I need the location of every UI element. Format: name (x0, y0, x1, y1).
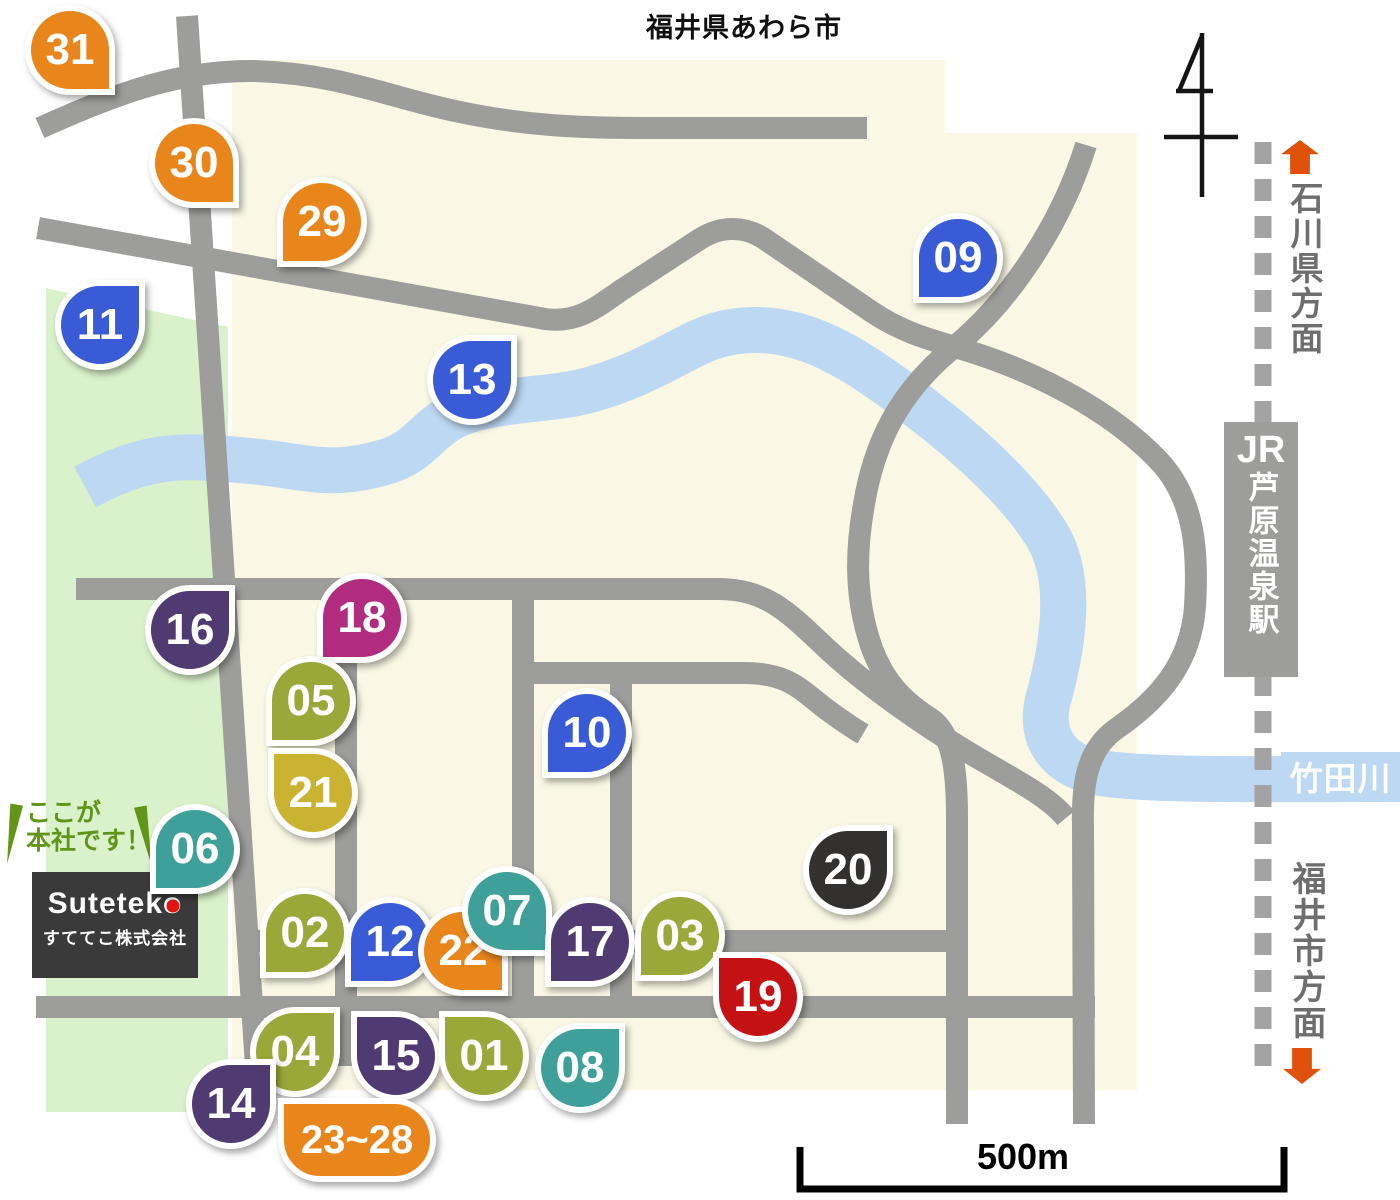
map-pin-15: 15 (351, 1011, 441, 1101)
map-pin-09: 09 (913, 213, 1003, 303)
map-pin-03: 03 (635, 891, 725, 981)
map-pin-31: 31 (25, 5, 115, 95)
map-pin-20: 20 (803, 825, 893, 915)
access-map: 福井県あわら市 ここが 本社です！ Suteteko すててこ株式会社 JR 芦… (0, 0, 1400, 1200)
map-pin-05: 05 (266, 656, 356, 746)
map-pin-16: 16 (145, 585, 235, 675)
map-pin-02: 02 (260, 888, 350, 978)
map-pin-11: 11 (55, 280, 145, 370)
map-pin-08: 08 (535, 1023, 625, 1113)
pins-layer: 3130291113091618051021062002122207170319… (0, 0, 1400, 1200)
map-pin-30: 30 (149, 118, 239, 208)
map-pin-19: 19 (713, 952, 803, 1042)
map-pin-23-28: 23~28 (278, 1098, 436, 1182)
map-pin-18: 18 (317, 573, 407, 663)
map-pin-14: 14 (186, 1059, 276, 1149)
map-pin-13: 13 (427, 335, 517, 425)
map-pin-07: 07 (462, 866, 552, 956)
map-pin-01: 01 (439, 1011, 529, 1101)
map-pin-21: 21 (268, 748, 358, 838)
map-pin-10: 10 (542, 688, 632, 778)
map-pin-17: 17 (545, 897, 635, 987)
map-pin-06: 06 (150, 804, 240, 894)
map-pin-29: 29 (277, 177, 367, 267)
